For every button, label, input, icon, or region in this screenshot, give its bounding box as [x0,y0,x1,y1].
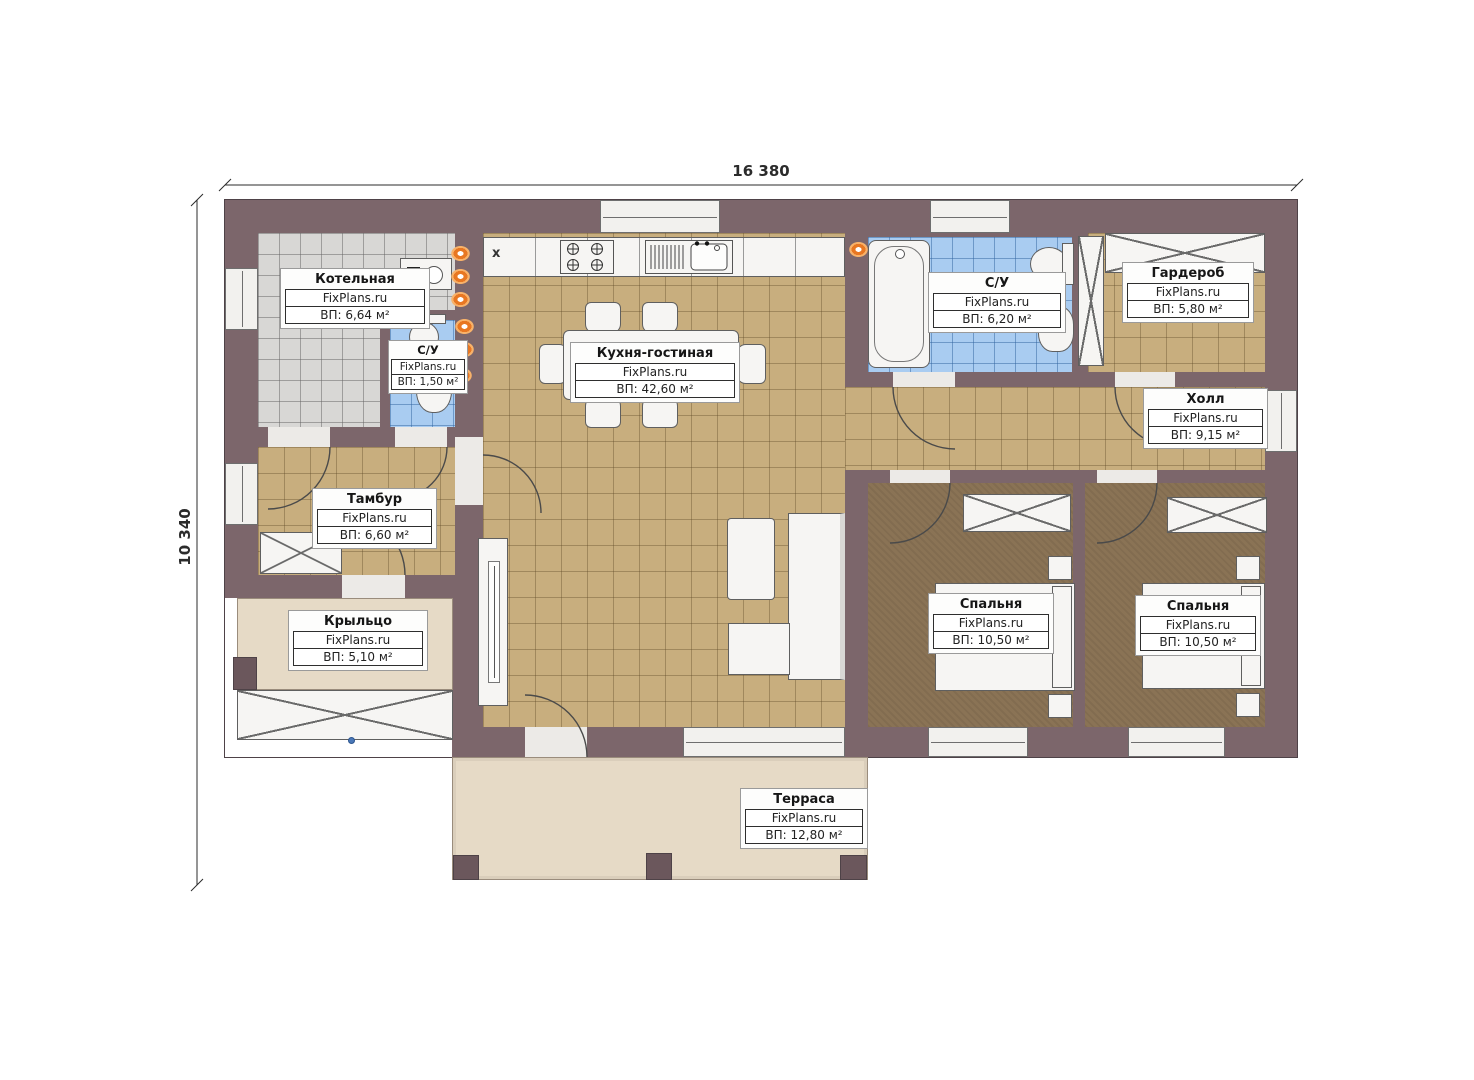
tv-icon [488,561,500,683]
bedroom-1-closet [963,494,1071,532]
heating-marker-icon [450,245,471,262]
room-name: Котельная [285,272,425,289]
window-bedroom-1 [928,727,1028,757]
room-label-boiler: Котельная FixPlans.ru ВП: 6,64 м² [280,268,430,329]
room-name: С/У [391,343,465,359]
watermark: FixPlans.ru [392,360,464,375]
dimension-left-label: 10 340 [176,492,194,582]
heating-marker-icon [450,268,471,285]
nightstand [1236,556,1260,580]
porch-marker-dot [348,737,355,744]
room-label-tambur: Тамбур FixPlans.ru ВП: 6,60 м² [312,488,437,549]
room-area: ВП: 42,60 м² [576,381,734,397]
porch-steps [237,690,453,740]
room-name: Гардероб [1127,266,1249,283]
bed-headboard [1052,586,1072,688]
door-opening-terrace [525,727,587,757]
terrace-post [646,853,672,880]
window-hall [1265,390,1297,452]
door-opening-boiler [268,427,330,447]
room-area: ВП: 12,80 м² [746,827,862,843]
sofa-chaise [728,623,790,675]
heating-marker-icon [454,318,475,335]
porch-post [233,657,257,690]
watermark: FixPlans.ru [1149,410,1262,427]
room-name: Холл [1148,392,1263,409]
tv-stand [478,538,508,706]
room-area: ВП: 5,10 м² [294,649,422,665]
room-label-porch: Крыльцо FixPlans.ru ВП: 5,10 м² [288,610,428,671]
room-area: ВП: 6,60 м² [318,527,431,543]
nightstand [1236,693,1260,717]
dimension-tick [219,179,1303,191]
watermark: FixPlans.ru [746,810,862,827]
door-opening-wardrobe [1115,372,1175,387]
watermark: FixPlans.ru [576,364,734,381]
window-kitchen-top [600,200,720,233]
window-living-bottom [683,727,845,757]
room-label-kitchen: Кухня-гостиная FixPlans.ru ВП: 42,60 м² [570,342,740,403]
room-area: ВП: 6,64 м² [286,307,424,323]
stove-icon [560,240,614,274]
nightstand [1048,556,1072,580]
window-wc-main-top [930,200,1010,233]
bathtub-tap-icon [895,249,905,259]
dimension-top-label: 16 380 [700,162,822,180]
bathtub-basin [874,246,924,362]
room-name: С/У [933,276,1061,293]
door-opening-bedroom-1 [890,470,950,483]
room-label-bedroom-2: Спальня FixPlans.ru ВП: 10,50 м² [1135,595,1261,656]
room-area: ВП: 5,80 м² [1128,301,1248,317]
door-opening-wc-small [395,427,447,447]
room-area: ВП: 10,50 м² [1141,634,1255,650]
watermark: FixPlans.ru [294,632,422,649]
outline-mask [225,740,452,757]
watermark: FixPlans.ru [1141,617,1255,634]
room-name: Тамбур [317,492,432,509]
door-opening-bedroom-2 [1097,470,1157,483]
heating-marker-icon [450,291,471,308]
heating-marker-icon [848,241,869,258]
room-label-terrace: Терраса FixPlans.ru ВП: 12,80 м² [740,788,868,849]
terrace-post [453,855,479,880]
coffee-table [727,518,775,600]
window-tambur [225,463,258,525]
room-name: Спальня [933,597,1049,614]
watermark: FixPlans.ru [318,510,431,527]
watermark: FixPlans.ru [934,615,1048,632]
window-bedroom-2 [1128,727,1225,757]
room-label-hall: Холл FixPlans.ru ВП: 9,15 м² [1143,388,1268,449]
room-area: ВП: 10,50 м² [934,632,1048,648]
wardrobe-closet-left [1078,236,1104,366]
window-boiler [225,268,258,330]
vent-marker: x [492,246,500,261]
room-area: ВП: 9,15 м² [1149,427,1262,443]
room-name: Крыльцо [293,614,423,631]
floor-plan-canvas: x [0,0,1474,1080]
watermark: FixPlans.ru [286,290,424,307]
watermark: FixPlans.ru [1128,284,1248,301]
room-label-wardrobe: Гардероб FixPlans.ru ВП: 5,80 м² [1122,262,1254,323]
sink-icon [645,240,733,274]
room-area: ВП: 1,50 м² [392,375,464,389]
chair [736,344,766,384]
watermark: FixPlans.ru [934,294,1060,311]
bathtub-icon [868,240,930,368]
door-opening-wc-main [893,372,955,387]
room-name: Спальня [1140,599,1256,616]
sofa [788,513,845,680]
nightstand [1048,694,1072,718]
room-label-wc-small: С/У FixPlans.ru ВП: 1,50 м² [388,340,468,394]
door-opening-entrance [342,575,405,598]
room-name: Кухня-гостиная [575,346,735,363]
room-name: Терраса [745,792,863,809]
room-label-wc-main: С/У FixPlans.ru ВП: 6,20 м² [928,272,1066,333]
bedroom-2-closet [1167,497,1267,533]
room-area: ВП: 6,20 м² [934,311,1060,327]
terrace-post [840,855,867,880]
room-label-bedroom-1: Спальня FixPlans.ru ВП: 10,50 м² [928,593,1054,654]
door-opening-kitchen [455,437,483,505]
